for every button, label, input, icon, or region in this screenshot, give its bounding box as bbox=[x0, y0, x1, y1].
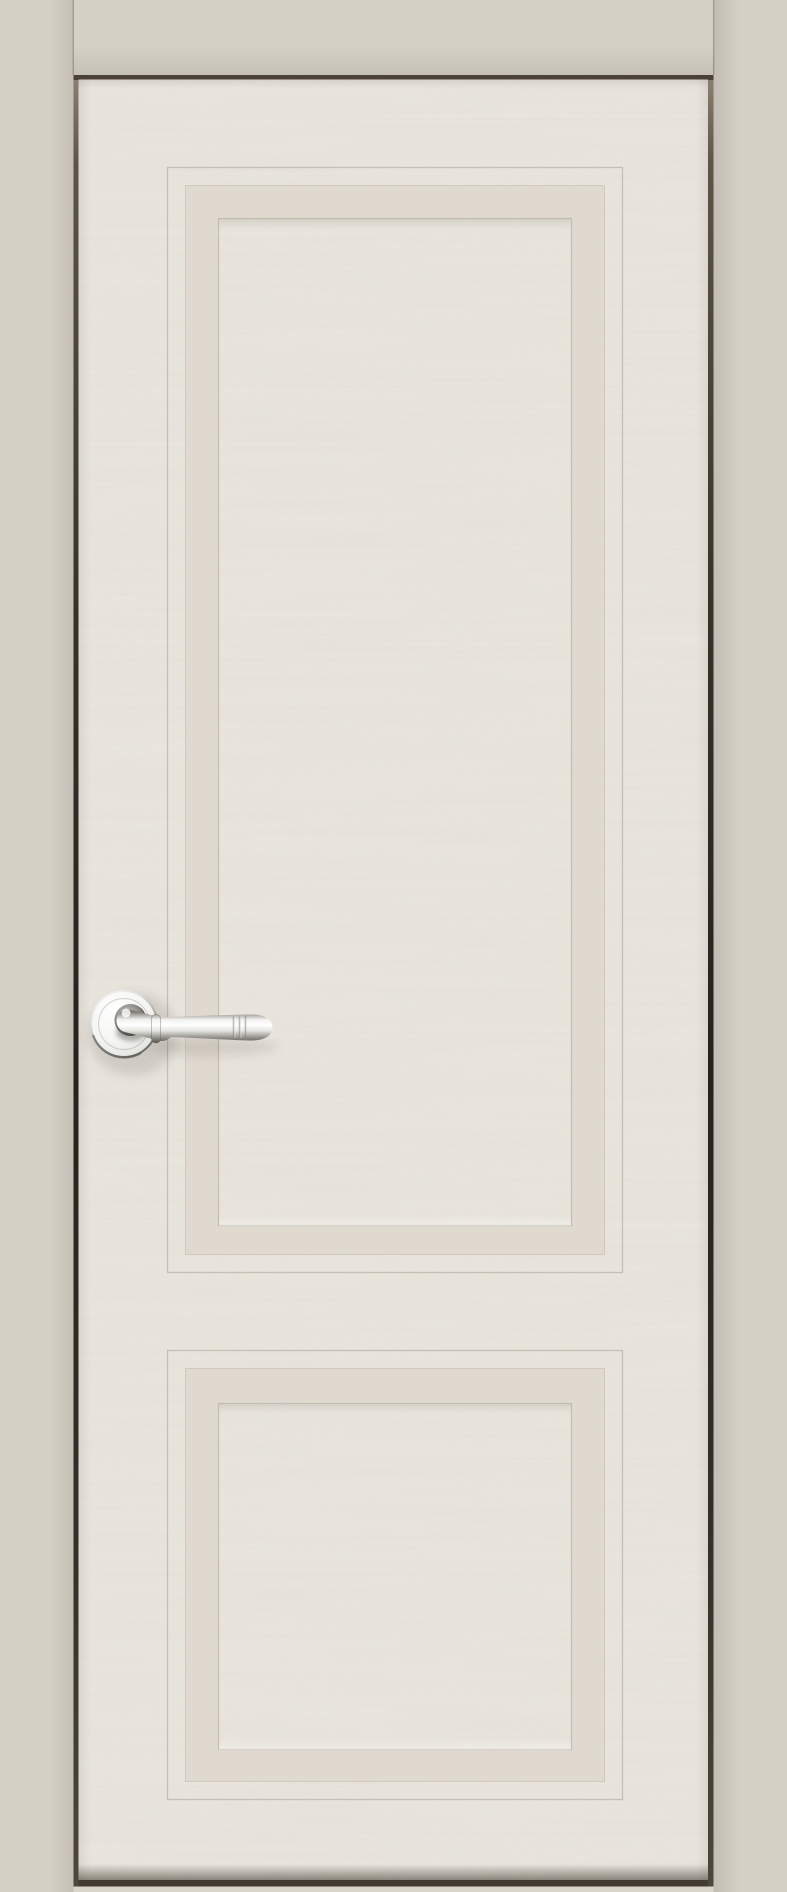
upper-panel-field-top-shadow bbox=[219, 219, 571, 229]
door-gap-top bbox=[74, 75, 714, 80]
door-edge-shade-right bbox=[696, 80, 708, 1882]
door-gap-left bbox=[74, 75, 79, 1887]
lower-panel-field-top-shadow bbox=[219, 1404, 571, 1414]
frame-shade-left-casing bbox=[50, 0, 74, 1892]
handle-lever bbox=[156, 1015, 273, 1041]
door-bottom-shade bbox=[79, 1864, 709, 1880]
lever-cast-shadow bbox=[146, 1038, 278, 1056]
door-leaf-texture-group bbox=[79, 80, 709, 1882]
collar-highlight bbox=[122, 1009, 131, 1018]
frame-shade-top-casing bbox=[73, 48, 714, 75]
door-gap-bottom bbox=[79, 1880, 709, 1887]
door-edge-shade-left bbox=[79, 80, 91, 1882]
lever-ring bbox=[152, 1015, 161, 1044]
door-grain-fine bbox=[79, 80, 709, 1882]
door-product-photo bbox=[0, 0, 787, 1892]
upper-panel-field-bottom-highlight bbox=[219, 1215, 571, 1226]
door-edge-shade-top bbox=[79, 80, 709, 89]
door-gap-right bbox=[708, 75, 714, 1887]
floor-strip bbox=[74, 1887, 714, 1892]
frame-shade-right-casing bbox=[714, 0, 740, 1892]
lower-panel-field-bottom-highlight bbox=[219, 1739, 571, 1750]
door-scene bbox=[0, 0, 787, 1892]
